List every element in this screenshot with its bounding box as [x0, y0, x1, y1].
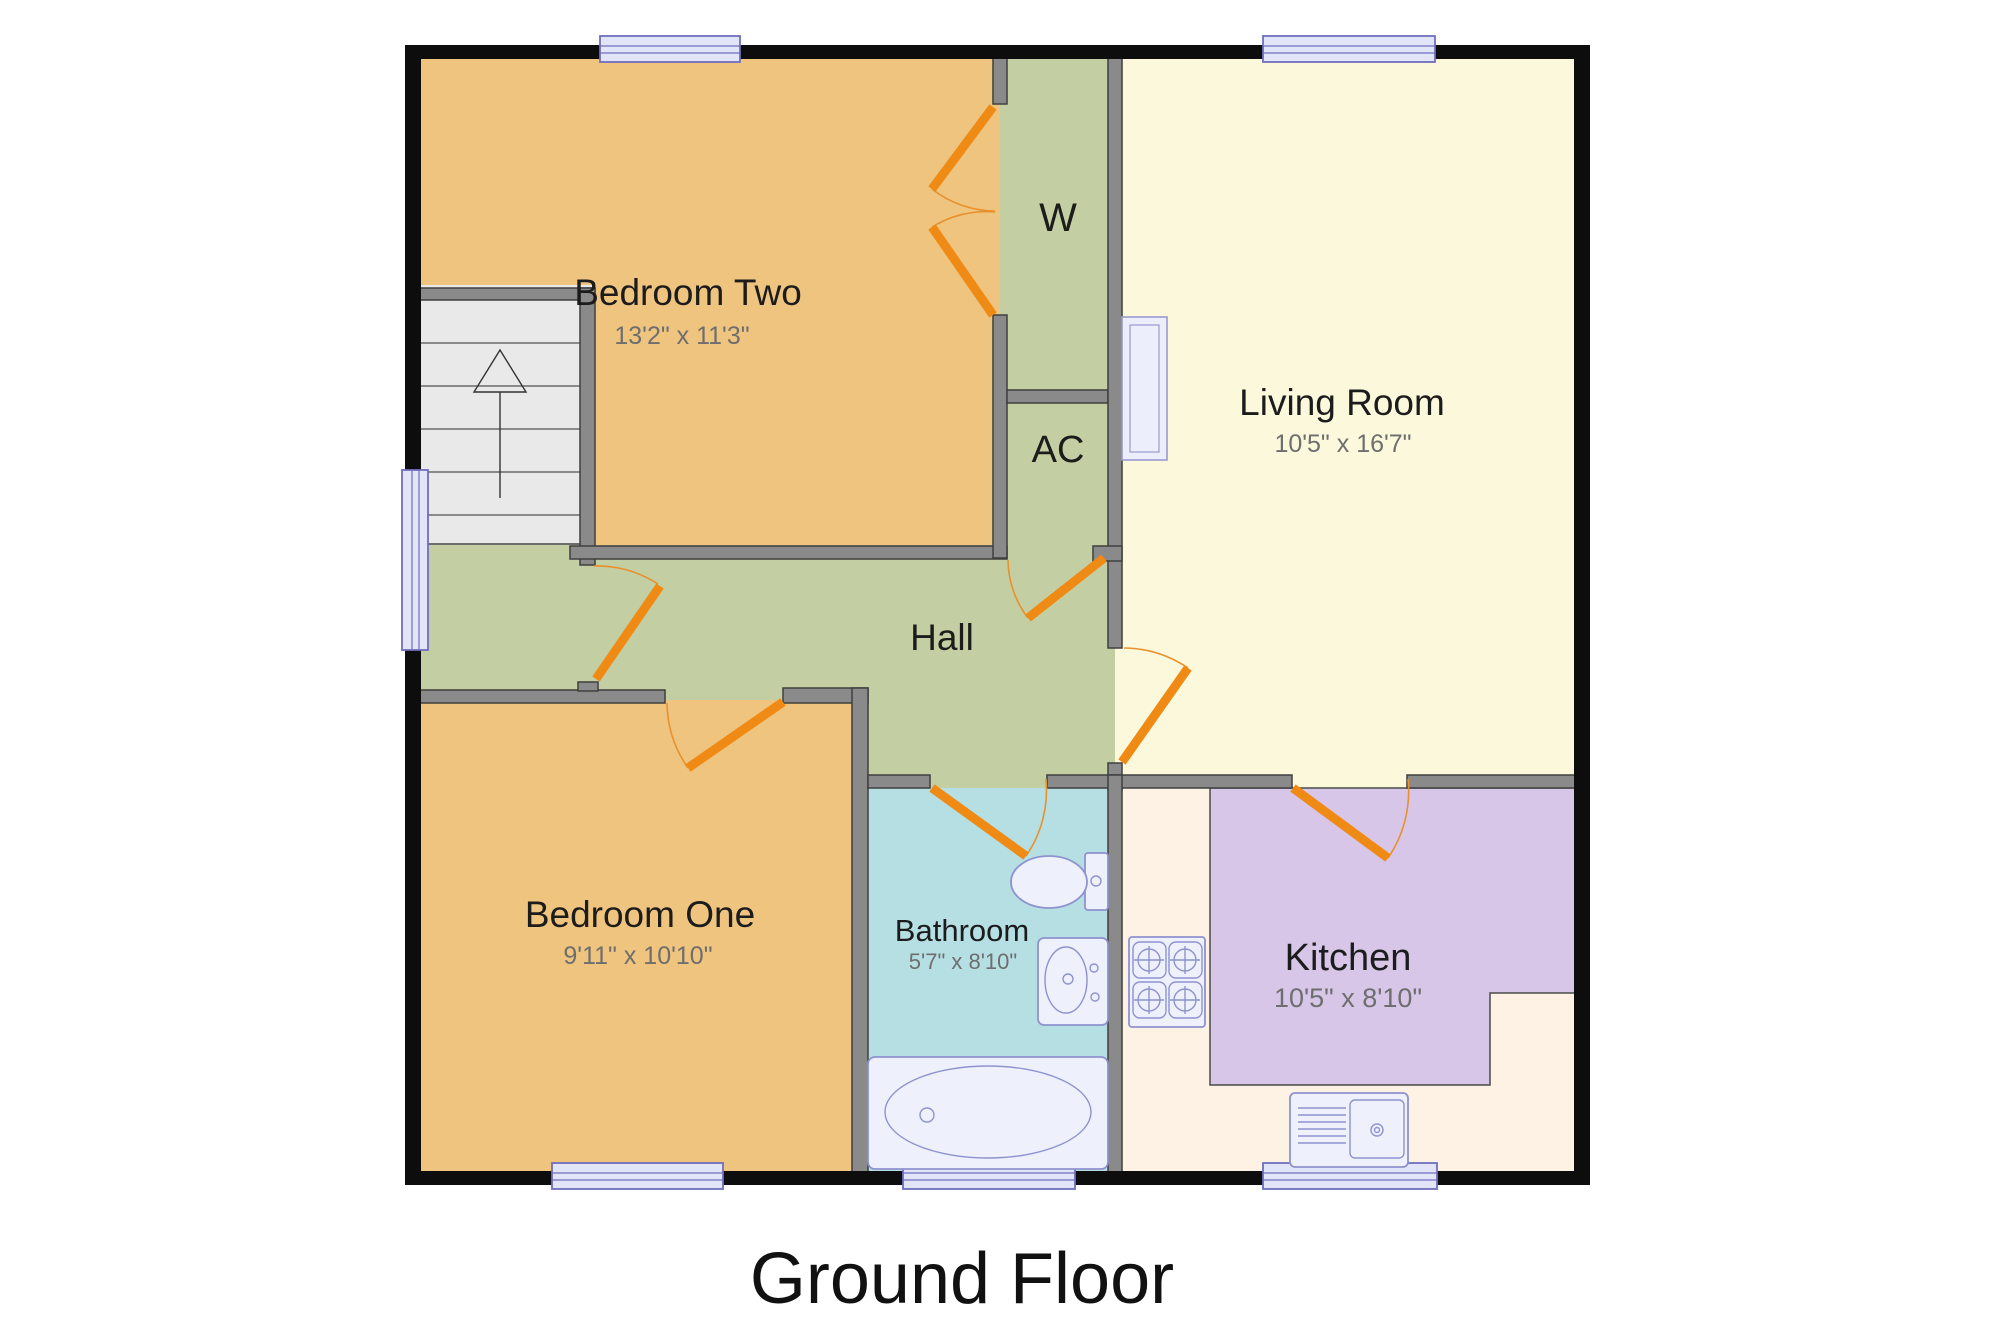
wall-segment — [993, 52, 1007, 104]
stove-hob — [1129, 937, 1205, 1027]
living-room-dims: 10'5" x 16'7" — [1274, 430, 1411, 458]
kitchen-label: Kitchen — [1285, 937, 1412, 979]
wall-segment — [868, 775, 930, 788]
bedroom-one-label: Bedroom One — [525, 894, 755, 935]
toilet-bowl — [1011, 856, 1087, 908]
wall-segment — [1007, 390, 1108, 403]
bedroom-two-dims: 13'2" x 11'3" — [614, 322, 749, 350]
hall-label: Hall — [910, 617, 974, 658]
floor-plan-page: Bedroom Two 13'2" x 11'3" W AC Living Ro… — [0, 0, 2000, 1333]
wall-segment — [580, 288, 595, 565]
sink-unit — [1290, 1093, 1408, 1167]
wall-segment — [852, 688, 868, 1172]
toilet-cistern — [1085, 853, 1108, 910]
bathtub — [868, 1057, 1108, 1169]
bedroom-one-dims: 9'11" x 10'10" — [563, 942, 712, 970]
door-hinge-post — [578, 682, 598, 691]
wardrobe-label: W — [1039, 196, 1077, 240]
kitchen-dims: 10'5" x 8'10" — [1274, 983, 1422, 1013]
bathtub-body — [868, 1057, 1108, 1169]
wall-segment — [1047, 775, 1292, 788]
wall-segment — [1407, 775, 1577, 788]
exterior-wall-right — [1574, 45, 1590, 1185]
bedroom-one-floor — [415, 700, 861, 1175]
wall-segment — [418, 288, 595, 300]
chimney-niche — [1122, 317, 1167, 460]
bathroom-label: Bathroom — [895, 913, 1029, 948]
kitchen-sink — [1290, 1093, 1408, 1167]
floor-plan-svg: Bedroom Two 13'2" x 11'3" W AC Living Ro… — [0, 0, 2000, 1333]
wall-segment — [570, 546, 1007, 559]
toilet — [1011, 853, 1108, 910]
wall-segment — [1108, 775, 1122, 1172]
ac-label: AC — [1032, 429, 1085, 471]
wardrobe-ac-floor — [1000, 52, 1115, 562]
wash-basin — [1038, 938, 1108, 1025]
bathroom-dims: 5'7" x 8'10" — [909, 949, 1017, 974]
window-bedroom-one — [552, 1163, 723, 1189]
window-hall-left — [402, 470, 428, 650]
niche-outer — [1122, 317, 1167, 460]
bedroom-two-label: Bedroom Two — [574, 272, 802, 313]
living-room-label: Living Room — [1239, 382, 1445, 423]
stairs-treads-area — [415, 285, 595, 545]
window-bedroom-two — [600, 36, 740, 62]
wall-segment — [993, 315, 1007, 558]
wall-segment — [418, 690, 665, 703]
window-living-room — [1263, 36, 1435, 62]
page-title: Ground Floor — [750, 1239, 1174, 1319]
staircase — [415, 285, 595, 545]
